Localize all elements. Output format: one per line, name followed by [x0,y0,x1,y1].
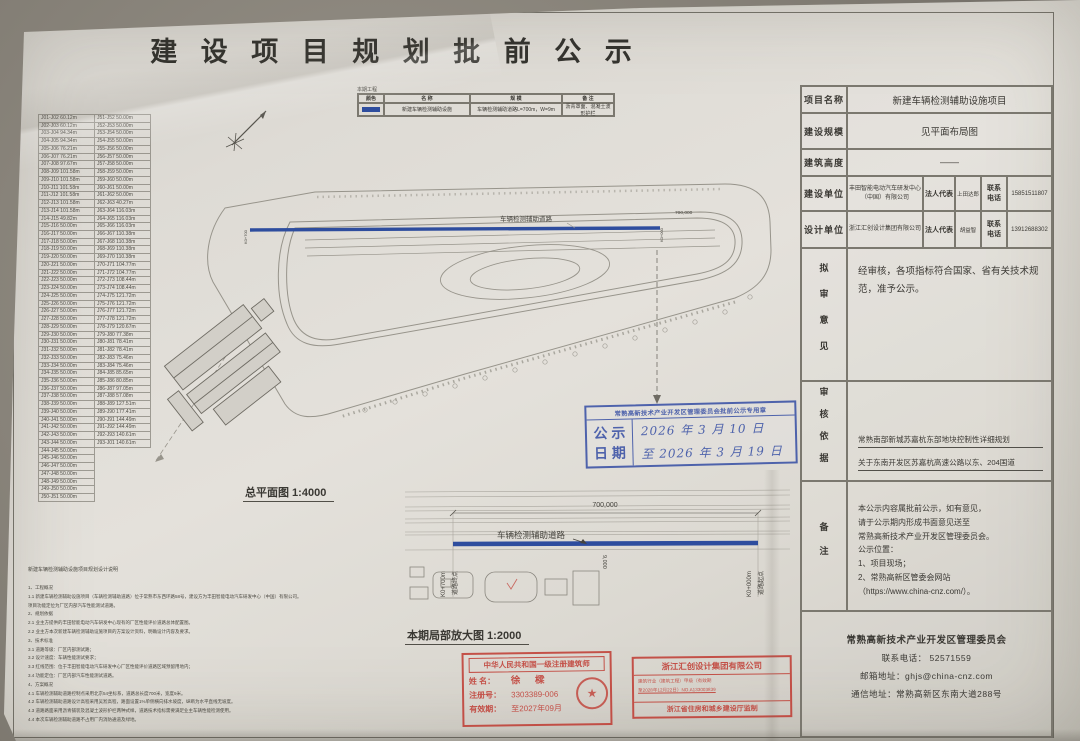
remark-line: （https://www.china-cnz.com/）。 [858,585,1043,599]
scale-value: 见平面布局图 [847,113,1052,149]
builder-tel-value: 15851511807 [1007,176,1052,211]
designer-tel-label: 联系 电话 [981,211,1007,248]
remark-line: 2、常熟高新区管委会网站 [858,571,1043,585]
legend-remark: 沥青罩面、混凝土波形护栏 [562,103,614,116]
publicity-date-to: 至 2026 年 3 月 19 日 [633,439,796,465]
project-info-table: 项目名称 新建车辆检测辅助设施项目 建设规模 见平面布局图 建筑高度 —— 建设… [800,85,1053,738]
design-notes-title: 新建车辆检测辅助设施项目规划设计说明 [28,566,448,573]
remark-line: 本公示内容属批前公示，如有意见， [858,502,1043,516]
design-note-line: 4.2 车辆检测辅助道路设计高程采用吴淞高程，路面设置1%单侧横向排水坡度，纵断… [28,698,448,707]
design-note-line: 2.1 业主方提供的丰田智能电动汽车研发中心现有的厂区性能评价道路总体配置图。 [28,619,448,628]
legend-header-color: 颜色 [358,94,384,103]
remark-text: 本公示内容属批前公示，如有意见，请于公示期内形成书面意见送至常熟高新技术产业开发… [847,481,1052,611]
designer-label: 设计单位 [801,211,847,248]
page-title: 建 设 项 目 规 划 批 前 公 示 [0,30,790,69]
publicity-date-stamp: 常熟高新技术产业开发区管理委员会批前公示专用章 公 示 日 期 2026 年 3… [584,400,797,468]
design-note-line: 1、工程概况 [28,584,448,593]
design-note-line: 2、规划依据 [28,610,448,619]
contact-address: 通信地址：常熟高新区东南大道288号 [851,688,1002,700]
scale-label: 建设规模 [801,113,847,149]
opinion-label: 拟审意见 [801,248,847,381]
basis-line: 关于东南开发区苏嘉杭高速公路以东、204国道 [858,457,1043,471]
basis-text: 常熟南部新城苏嘉杭东部地块控制性详细规划 关于东南开发区苏嘉杭高速公路以东、20… [847,381,1052,481]
designer-rep-value: 胡益智 [955,211,981,248]
architect-stamp-header: 中华人民共和国一级注册建筑师 [469,656,605,673]
builder-rep-value: 上田达郎 [955,176,981,211]
height-label: 建筑高度 [801,149,847,176]
designer-tel-value: 13912688302 [1007,211,1052,248]
detail-start-station: K0+000m [747,571,753,597]
design-note-line: 4、方案概况 [28,681,448,690]
design-notes: 新建车辆检测辅助设施项目规划设计说明 1、工程概况 1.1 新建车辆检测辅助设施… [28,566,448,725]
company-stamp-footer: 浙江省住房和城乡建设厅监制 [634,700,790,717]
remark-line: 1、项目现场； [858,557,1043,571]
builder-tel-label: 联系 电话 [981,176,1007,211]
site-plan-end-station: K0+700 [243,229,248,244]
design-note-line: 项目功能定位为厂区内部汽车性能测试道路。 [28,602,448,611]
contact-org: 常熟高新技术产业开发区管理委员会 [846,632,1006,646]
site-plan-road-label: 车辆检测辅助道路 [500,214,553,223]
design-note-line: 3.4 功能定位：厂区内部汽车性能测试道路。 [28,672,448,681]
design-note-line: 3.3 红线范围：位于丰田智能电动汽车研发中心厂区性能评价道路区域预留用地内； [28,663,448,672]
site-plan-road-dim: 700,000 [675,210,693,216]
design-note-line: 1.1 新建车辆检测辅助设施项目（车辆检测辅助道路）位于常熟市东西环路58号，建… [28,593,448,602]
builder-rep-label: 法人代表 [923,176,955,211]
legend-header-name: 名 称 [384,94,470,103]
contact-tel: 联系电话： 52571559 [882,652,972,664]
architect-name-label: 姓 名： [469,674,511,689]
remark-line: 公示位置： [858,543,1043,557]
builder-label: 建设单位 [801,176,847,211]
builder-value: 丰田智能电动汽车研发中心（中国）有限公司 [847,176,923,211]
design-note-line: 4.4 本次车辆检测辅助道路不占用厂内消防通道及绿地。 [28,716,448,725]
design-note-line: 3.2 设计速度：车辆性能测试要求； [28,654,448,663]
coordinate-row: J50-J51 50.00m [39,494,151,502]
project-name-label: 项目名称 [801,86,847,113]
stamp-leader-line [650,248,664,406]
detail-dim-length: 700,000 [592,502,617,509]
architect-valid: 至2027年09月 [511,702,562,717]
design-note-line: 2.2 业主方本次新建车辆检测辅助设施项目的方案设计资料，明确设计内容及要求。 [28,628,448,637]
design-note-line: 3、技术标准 [28,637,448,646]
legend-color-swatch-icon [362,107,380,112]
design-note-line: 4.3 道路路面采用沥青铺装及混凝土波形护栏两种式样，道路技术指标需要满足业主车… [28,707,448,716]
publicity-stamp-left: 公 示 日 期 [587,419,634,466]
design-company-stamp: 浙江汇创设计集团有限公司 建筑行业（建筑工程）甲级（有效期 至2028年12月2… [632,655,793,719]
architect-reg: 3303389-006 [511,688,558,703]
basis-line: 常熟南部新城苏嘉杭东部地块控制性详细规划 [858,434,1043,448]
legend-table: 颜色 名 称 规 模 备 注 新建车辆检测辅助设施 车辆检测辅助道路L=700m… [357,93,615,117]
architect-stamp: 中华人民共和国一级注册建筑师 姓 名：徐 樑 注册号：3303389-006 有… [461,651,612,727]
design-notes-lines: 1、工程概况 1.1 新建车辆检测辅助设施项目（车辆检测辅助道路）位于常熟市东西… [28,584,448,725]
architect-valid-label: 有效期： [469,702,511,717]
remark-line: 常熟高新技术产业开发区管理委员会。 [858,530,1043,544]
project-name-value: 新建车辆检测辅助设施项目 [847,86,1052,113]
architect-reg-label: 注册号： [469,688,511,703]
remark-line: 请于公示期内形成书面意见送至 [858,516,1043,530]
legend-scale: 车辆检测辅助道路L=700m，W=9m [470,103,562,116]
detail-dim-width: 9,000 [601,555,607,569]
detail-start-label: 道路起点 [757,571,765,595]
detail-road-label: 车辆检测辅助道路 [497,530,566,540]
company-cert-line: 至2028年12月22日）NO.A133003839 [634,683,790,694]
legend-caption: 本期工程 [357,86,377,93]
site-plan-start-station: K0+000 [659,227,664,242]
master-plan-caption: 总平面图 1:4000 [243,484,334,502]
document-sheet: 建 设 项 目 规 划 批 前 公 示 本期工程 颜色 名 称 规 模 备 注 … [0,0,1080,741]
contact-email: 邮箱地址：ghjs@china-cnz.com [860,670,993,682]
height-value: —— [847,149,1052,176]
legend-color-cell [358,103,384,116]
designer-value: 浙江汇创设计集团有限公司 [847,211,923,248]
design-note-line: 4.1 车辆检测辅助道路控制点采用北京54坐标系，道路总长度700米，宽度9米。 [28,690,448,699]
designer-rep-label: 法人代表 [923,211,955,248]
detail-plan-drawing: 700,000 车辆检测辅助道路 9,000 K0+700m 道路终点 K0+0… [405,487,790,625]
architect-name: 徐 樑 [511,674,551,689]
company-stamp-header: 浙江汇创设计集团有限公司 [634,657,790,676]
opinion-text: 经审核，各项指标符合国家、省有关技术规范，准予公示。 [847,248,1052,381]
contact-block: 常熟高新技术产业开发区管理委员会 联系电话： 52571559 邮箱地址：ghj… [801,611,1052,737]
design-note-line: 3.1 道路等级：厂区内部测试路； [28,646,448,655]
basis-label: 审核依据 [801,381,847,481]
legend-name: 新建车辆检测辅助设施 [384,103,470,116]
detail-end-label: 道路终点 [451,571,459,595]
legend-header-scale: 规 模 [470,94,562,103]
remark-label: 备注 [801,481,847,611]
